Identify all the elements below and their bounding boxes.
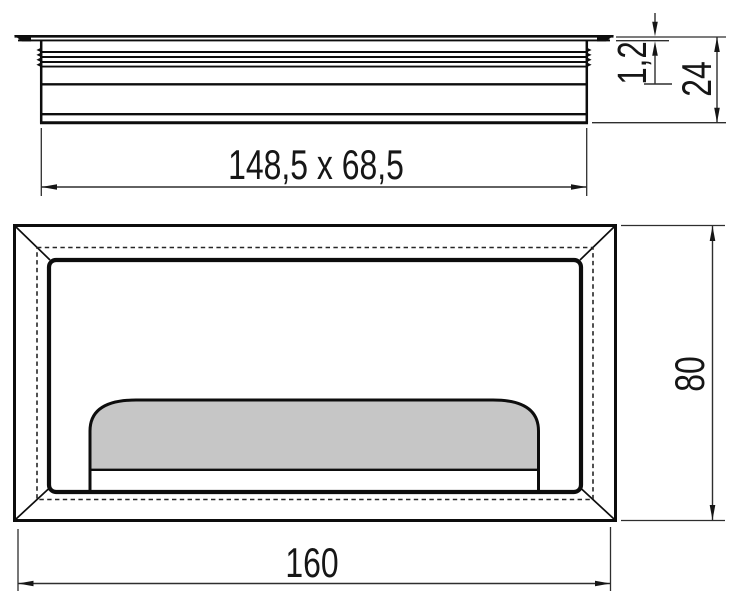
lid-fill	[90, 400, 539, 470]
dimension-cutout-label: 148,5 x 68,5	[228, 141, 404, 188]
dimension-height-label: 24	[673, 61, 720, 97]
arrow-up-icon	[714, 37, 720, 52]
dimension-depth-label: 80	[666, 356, 713, 392]
flange-left-tip	[14, 35, 31, 41]
arrow-down-icon	[652, 22, 658, 37]
arrow-up-icon	[710, 226, 716, 241]
grommet-technical-drawing: 148,5 x 68,5 1,2 24	[0, 0, 740, 603]
flange	[14, 35, 614, 41]
dimension-flange-thickness-label: 1,2	[609, 41, 655, 84]
dimension-depth: 80	[621, 226, 725, 521]
plan-view: 80 160	[15, 226, 726, 592]
arrow-left-icon	[18, 581, 34, 587]
dimension-cutout: 148,5 x 68,5	[41, 128, 586, 196]
arrow-right-icon	[595, 581, 611, 587]
dimension-width-label: 160	[285, 539, 338, 586]
side-view: 148,5 x 68,5 1,2 24	[14, 13, 726, 196]
body	[36, 41, 591, 124]
flange-right-tip	[597, 35, 614, 41]
arrow-down-icon	[710, 505, 716, 520]
arrow-down-icon	[714, 108, 720, 123]
dimension-width: 160	[18, 527, 611, 591]
technical-drawing-canvas: 148,5 x 68,5 1,2 24	[0, 0, 740, 603]
rib-lines	[41, 52, 587, 67]
arrow-right-icon	[571, 184, 587, 190]
arrow-left-icon	[41, 184, 57, 190]
